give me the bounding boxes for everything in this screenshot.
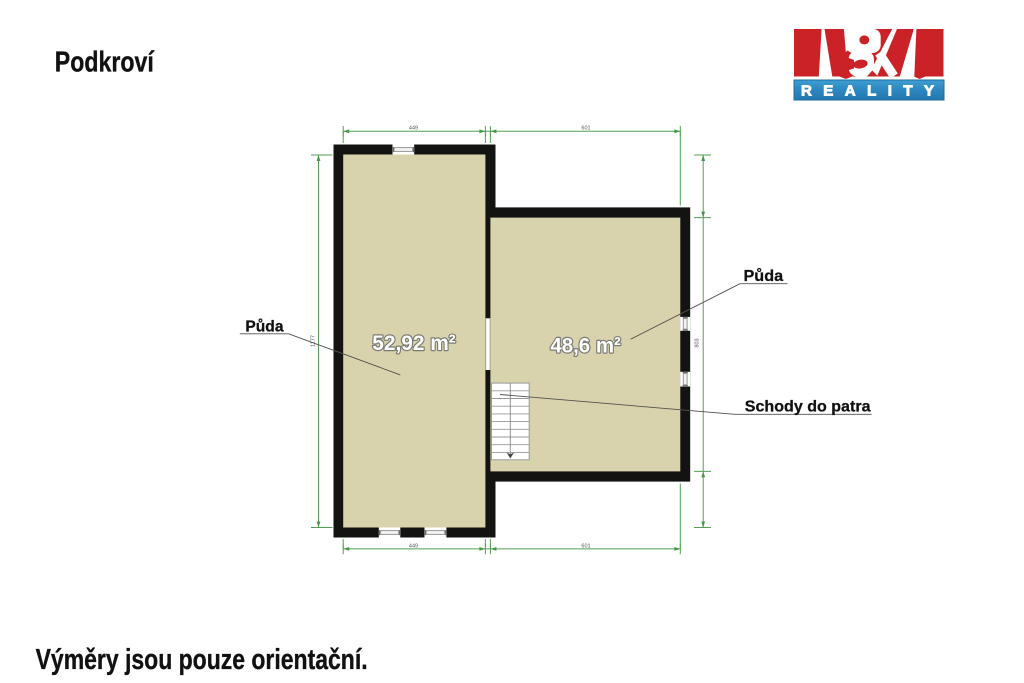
svg-text:Výměry jsou pouze orientační.: Výměry jsou pouze orientační. — [36, 644, 368, 676]
svg-text:601: 601 — [581, 126, 590, 132]
svg-text:Půda: Půda — [245, 319, 283, 336]
svg-text:48,6 m²: 48,6 m² — [550, 333, 621, 357]
svg-text:449: 449 — [409, 126, 418, 132]
svg-text:601: 601 — [581, 543, 590, 549]
svg-text:1177: 1177 — [311, 335, 317, 347]
svg-text:Půda: Půda — [744, 268, 784, 285]
svg-text:449: 449 — [409, 543, 418, 549]
svg-text:52,92 m²: 52,92 m² — [372, 331, 456, 355]
svg-text:Podkroví: Podkroví — [55, 47, 155, 79]
svg-text:Schody do patra: Schody do patra — [745, 399, 871, 416]
svg-text:803: 803 — [695, 338, 701, 347]
